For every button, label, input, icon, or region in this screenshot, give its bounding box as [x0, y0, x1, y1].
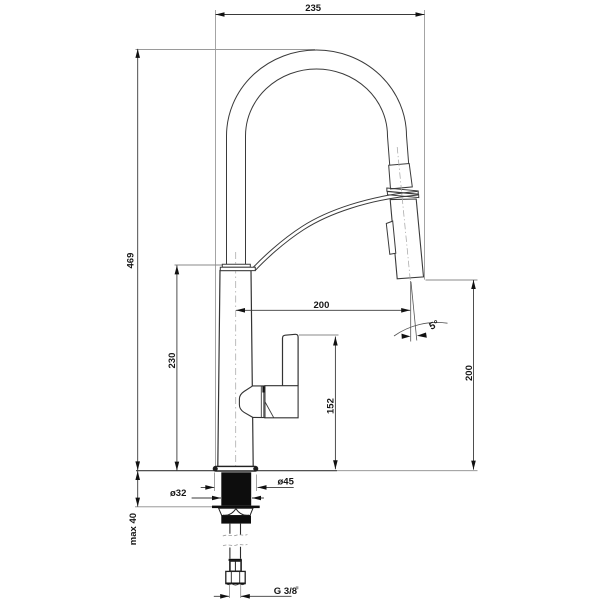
svg-text:G 3/8: G 3/8 — [274, 586, 297, 597]
svg-text:152: 152 — [326, 398, 337, 414]
svg-text:ø45: ø45 — [278, 477, 295, 488]
svg-text:ø32: ø32 — [170, 488, 186, 499]
svg-text:230: 230 — [167, 353, 178, 369]
svg-text:469: 469 — [125, 253, 136, 269]
svg-text:200: 200 — [464, 365, 475, 381]
svg-text:235: 235 — [305, 3, 322, 14]
svg-text:max 40: max 40 — [128, 513, 139, 545]
svg-text:200: 200 — [314, 300, 330, 311]
